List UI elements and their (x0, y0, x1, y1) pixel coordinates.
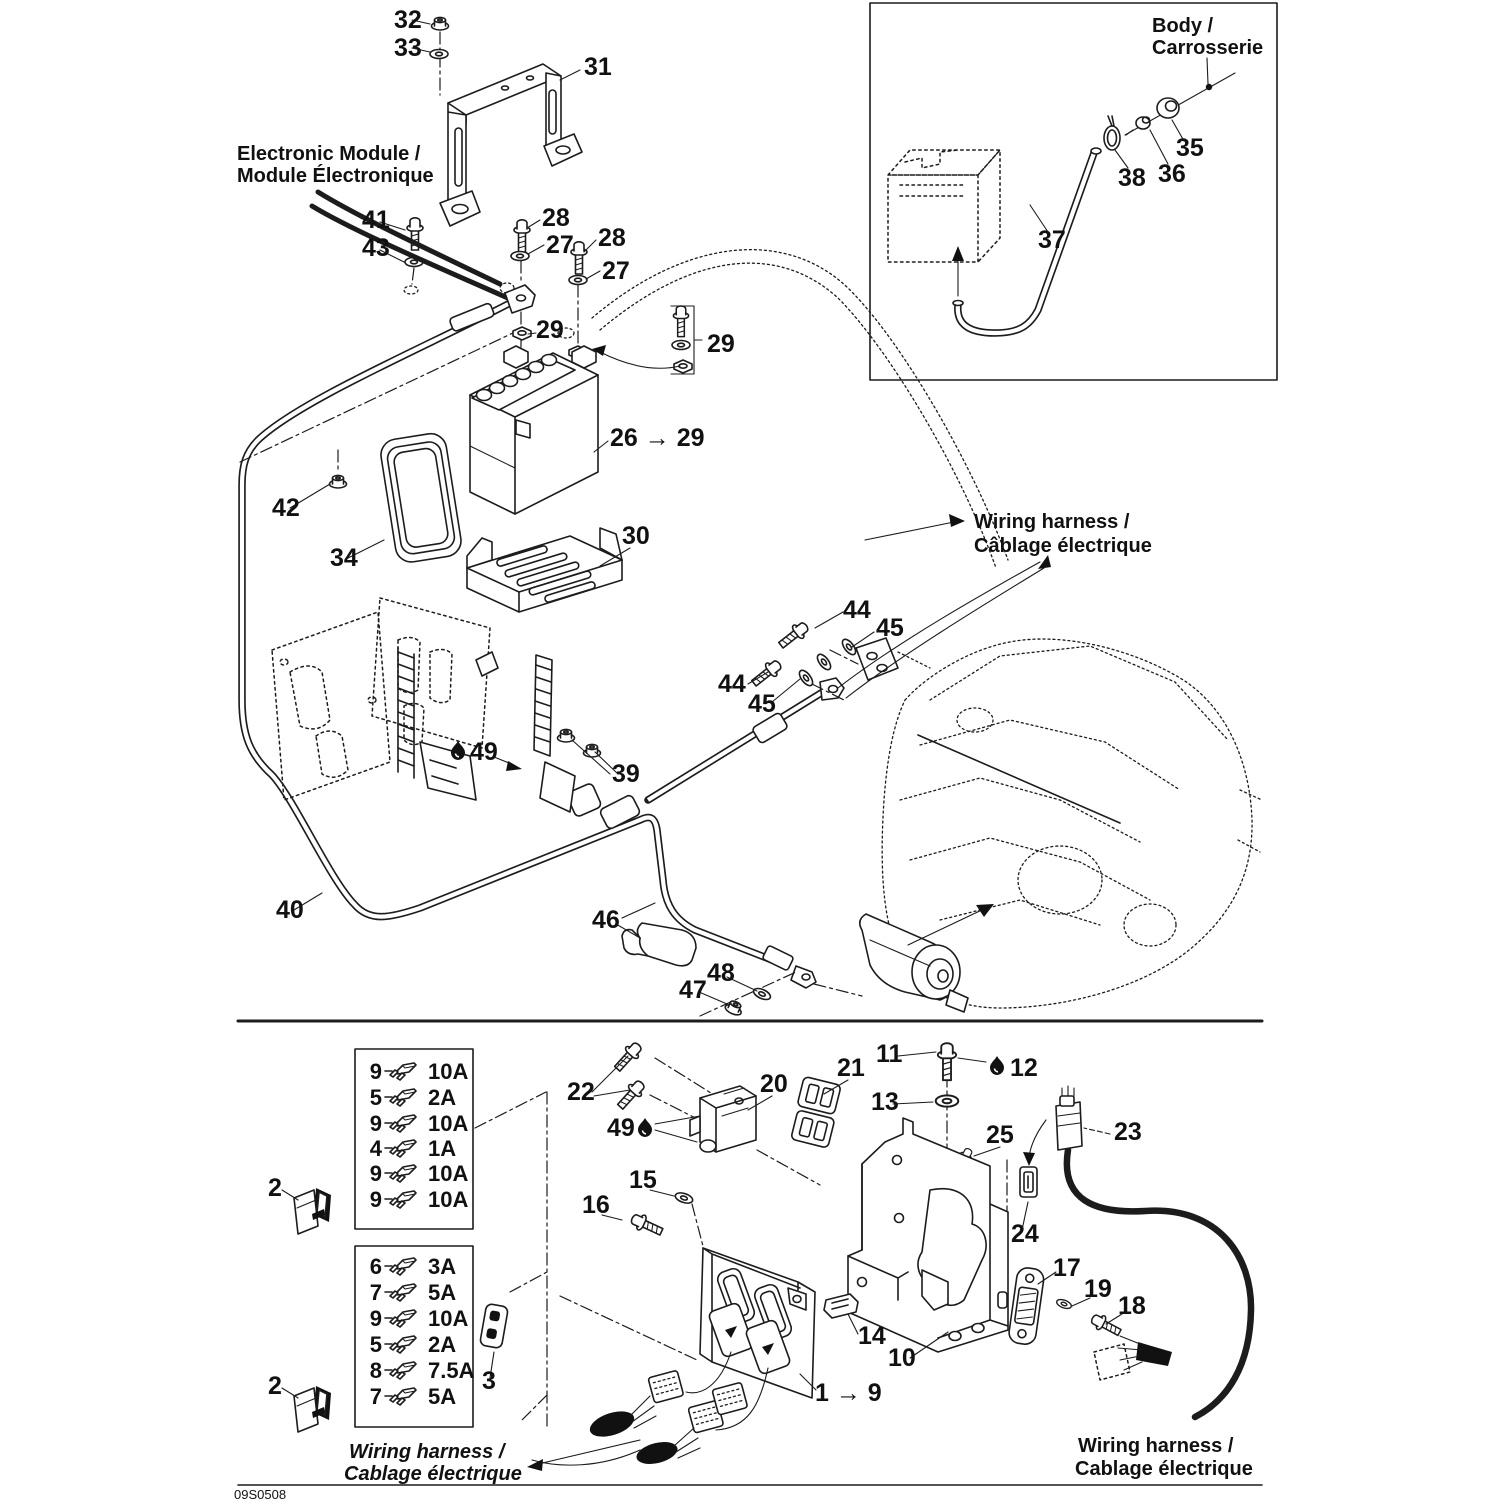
callout-34: 34 (330, 544, 358, 572)
bolt-22a (611, 1040, 644, 1075)
callout-13: 13 (871, 1088, 899, 1116)
callout-24: 24 (1011, 1220, 1039, 1248)
electronic-module-dashed (272, 598, 498, 800)
callout-49a: 49 (470, 738, 498, 766)
arrowhead-49 (506, 761, 522, 771)
nut-32 (432, 17, 449, 30)
callout-19: 19 (1084, 1275, 1112, 1303)
fuse-qty: 8 (370, 1358, 382, 1383)
fuse-qty: 7 (370, 1384, 382, 1409)
callout-37: 37 (1038, 226, 1066, 254)
callout-30: 30 (622, 522, 650, 550)
callout-29a: 29 (536, 316, 564, 344)
fuse-amp: 5A (428, 1384, 456, 1409)
callout-3: 3 (482, 1367, 496, 1395)
body-label-line2: Carrosserie (1152, 37, 1263, 59)
body-label-line1: Body / (1152, 15, 1214, 37)
fuse-amp: 10A (428, 1306, 468, 1331)
fuse-qty: 9 (370, 1059, 382, 1084)
callout-27b: 27 (602, 257, 630, 285)
nut-42 (330, 475, 347, 488)
fuse-amp: 10A (428, 1161, 468, 1186)
fuse-amp: 2A (428, 1085, 456, 1110)
fuse-amp: 3A (428, 1254, 456, 1279)
callout-46: 46 (592, 906, 620, 934)
relay-20 (690, 1086, 756, 1152)
callout-14: 14 (858, 1322, 886, 1350)
callout-27: 27 (546, 231, 574, 259)
fuse-table-top: 9 10A 5 2A 9 10A 4 1A 9 10A 9 10A (355, 1049, 473, 1229)
oil-droplet-icon-49 (451, 741, 465, 760)
battery (470, 346, 598, 514)
fuse-qty: 9 (370, 1306, 382, 1331)
rubber-retainer-frame (379, 431, 464, 564)
fuse-table-bottom: 6 3A 7 5A 9 10A 5 2A 8 7.5A 7 5A (355, 1246, 475, 1427)
callout-38: 38 (1118, 164, 1146, 192)
wiring-harness-bl-line2: Cablage électrique (344, 1463, 522, 1485)
wiring-label-arrow-line (865, 522, 954, 540)
fuse-amp: 10A (428, 1187, 468, 1212)
electronic-module-label-line1: Electronic Module / (237, 143, 421, 165)
engine-pointer-line (908, 908, 986, 945)
washer-13 (936, 1095, 959, 1106)
callout-44b: 44 (718, 670, 746, 698)
callout-20: 20 (760, 1070, 788, 1098)
callout-33: 33 (394, 34, 422, 62)
callout-21: 21 (837, 1054, 865, 1082)
callout-18: 18 (1118, 1292, 1146, 1320)
wiring-harness-mid-line2: Câblage électrique (974, 535, 1152, 557)
washer-48 (752, 986, 772, 1002)
callout-12: 12 (1010, 1054, 1038, 1082)
callout-2a: 2 (268, 1174, 282, 1202)
fuse-qty: 5 (370, 1332, 382, 1357)
callout-39: 39 (612, 760, 640, 788)
cable-to-starter-axis (814, 984, 862, 996)
fuse-amp: 10A (428, 1059, 468, 1084)
ecu-module (700, 1248, 815, 1398)
callout-44a: 44 (843, 596, 871, 624)
callout-41: 41 (362, 206, 390, 234)
wiring-harness-bl-line1: Wiring harness / (349, 1441, 507, 1463)
fuse-amp: 1A (428, 1136, 456, 1161)
wiring-harness-br-line1: Wiring harness / (1078, 1435, 1234, 1457)
bolt-axis-41 (412, 268, 414, 284)
wiring-bl-arrow-line (534, 1440, 640, 1465)
arrowhead-24 (1023, 1152, 1035, 1166)
callout-10: 10 (888, 1344, 916, 1372)
rubber-boot-46 (622, 923, 696, 966)
washer-27b (569, 276, 587, 285)
fuse-amp: 7.5A (428, 1358, 475, 1383)
oil-droplet-icon-49b (638, 1118, 652, 1137)
callout-36: 36 (1158, 160, 1186, 188)
dotted-harness-curve-1 (592, 250, 1008, 560)
callout-17: 17 (1053, 1254, 1081, 1282)
inset-vent-tube (888, 58, 1235, 333)
callout-49b: 49 (607, 1114, 635, 1142)
leader-12 (958, 1058, 986, 1062)
callout-47: 47 (679, 976, 707, 1004)
callout-42: 42 (272, 494, 300, 522)
fuse-qty: 7 (370, 1280, 382, 1305)
nut-47 (724, 999, 745, 1017)
callout-45a: 45 (876, 614, 904, 642)
battery-hold-down-bracket (440, 64, 582, 226)
battery-tray (467, 528, 622, 612)
fuse-holder-bottom (294, 1386, 331, 1432)
dotted-harness-curve-2 (600, 263, 996, 568)
callout-40: 40 (276, 896, 304, 924)
washer-19 (1056, 1298, 1073, 1310)
callout-35: 35 (1176, 134, 1204, 162)
callout-1-9: 1 → 9 (815, 1379, 882, 1407)
callout-31: 31 (584, 53, 612, 81)
fuse-icons (385, 1258, 416, 1405)
switch-bracket-17 (1008, 1267, 1045, 1346)
callout-26-29: 26 → 29 (610, 424, 705, 452)
washer-15 (674, 1191, 694, 1205)
fuse-icons (385, 1063, 416, 1208)
parts-diagram-page: 9 10A 5 2A 9 10A 4 1A 9 10A 9 10A 6 3A 7 (0, 0, 1500, 1500)
callout-28: 28 (542, 204, 570, 232)
wiring-harness-br-line2: Cablage électrique (1075, 1458, 1253, 1480)
clip-24 (1020, 1167, 1037, 1197)
doc-code: 09S0508 (234, 1487, 286, 1500)
callout-22: 22 (567, 1078, 595, 1106)
fuse-qty: 6 (370, 1254, 382, 1279)
callout-45b: 45 (748, 690, 776, 718)
callout-32: 32 (394, 6, 422, 34)
fuse-bracket-3 (480, 1303, 509, 1348)
fuse-amp: 2A (428, 1332, 456, 1357)
bolt-28a (514, 220, 530, 252)
fuse-qty: 9 (370, 1111, 382, 1136)
callout-29b: 29 (707, 330, 735, 358)
bolt-11 (938, 1043, 956, 1080)
bolt-22b (614, 1078, 647, 1113)
leader-29-arrow (600, 352, 680, 368)
bolt-16 (629, 1211, 665, 1239)
fuse-amp: 5A (428, 1280, 456, 1305)
electronic-module-label-line2: Module Électronique (237, 164, 434, 187)
fuse-amp: 10A (428, 1111, 468, 1136)
fuse-qty: 9 (370, 1161, 382, 1186)
washer-33 (430, 50, 448, 59)
callout-16: 16 (582, 1191, 610, 1219)
fuse-qty: 9 (370, 1187, 382, 1212)
fuse-qty: 5 (370, 1085, 382, 1110)
callout-11: 11 (876, 1040, 903, 1068)
callout-48: 48 (707, 959, 735, 987)
oil-droplet-icon-12 (990, 1056, 1004, 1075)
callout-23: 23 (1114, 1118, 1142, 1146)
callout-2b: 2 (268, 1372, 282, 1400)
fuse-qty: 4 (370, 1136, 383, 1161)
hidden-nut (404, 286, 418, 294)
starter-motor (860, 914, 968, 1012)
washer-27a (511, 252, 529, 261)
arrow-to-clip-24 (1029, 1120, 1046, 1158)
connector-23-cable (1056, 1086, 1251, 1417)
callout-25: 25 (986, 1121, 1014, 1149)
wiring-label-arrowhead (949, 514, 965, 527)
inset-box-border (870, 3, 1277, 380)
callout-28b: 28 (598, 224, 626, 252)
callout-43: 43 (362, 234, 390, 262)
exploded-parts-diagram: 9 10A 5 2A 9 10A 4 1A 9 10A 9 10A 6 3A 7 (0, 0, 1500, 1500)
callout-15: 15 (629, 1166, 657, 1194)
hardware-group-29 (671, 306, 702, 374)
fuse-holder-top (294, 1188, 331, 1234)
wiring-harness-mid-line1: Wiring harness / (974, 511, 1130, 533)
